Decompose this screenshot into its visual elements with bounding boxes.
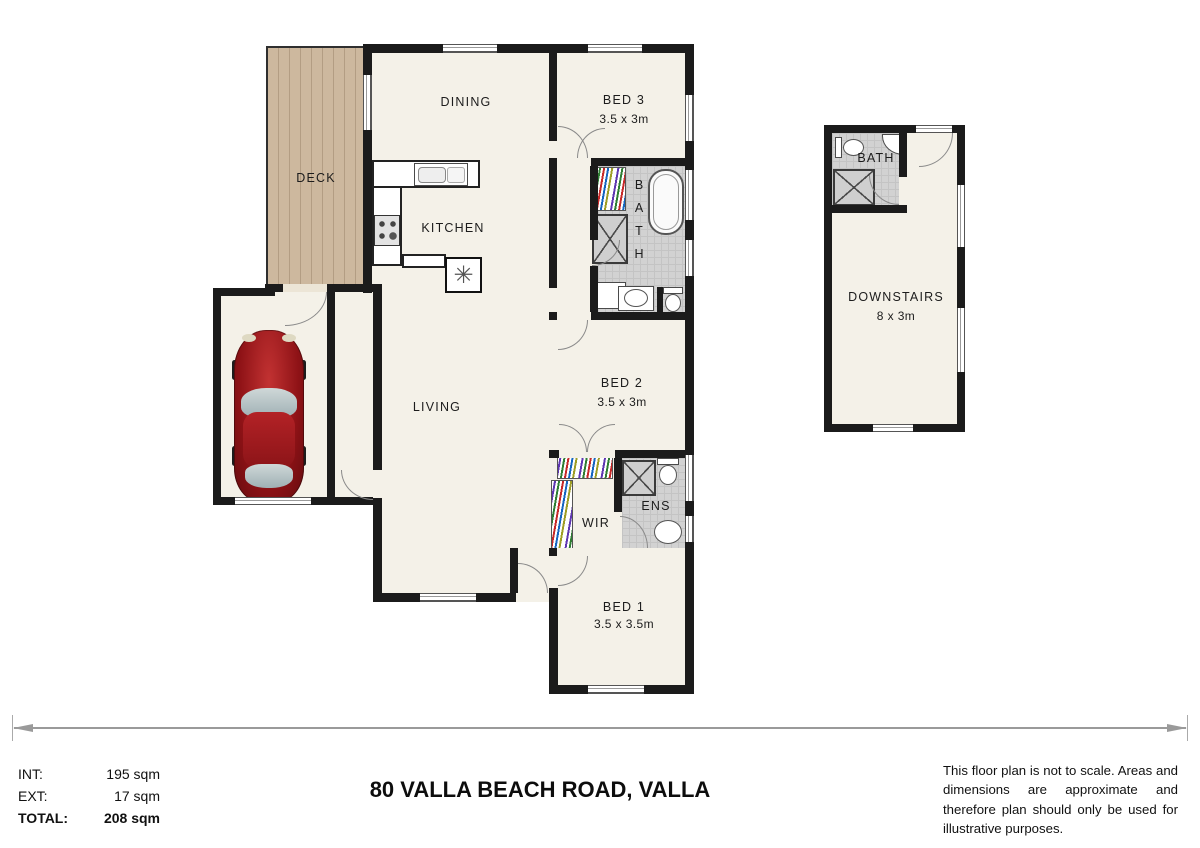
floor-plan-page: ✳ <box>0 0 1200 848</box>
area-int-label: INT: <box>18 763 98 785</box>
area-summary: INT:195 sqm EXT:17 sqm TOTAL:208 sqm <box>18 763 160 829</box>
wall <box>899 133 907 177</box>
wall <box>957 125 965 432</box>
area-total-label: TOTAL: <box>18 807 98 829</box>
wall <box>685 44 694 694</box>
window <box>916 125 952 133</box>
room-label-dining: DINING <box>441 95 492 109</box>
scale-end-tick <box>1187 715 1188 741</box>
window <box>443 44 497 53</box>
kitchen-bench-bottom <box>402 254 446 268</box>
area-ext-value: 17 sqm <box>98 785 160 807</box>
wall <box>614 450 622 512</box>
room-label-bed1: BED 1 <box>603 600 645 614</box>
ensuite-shower-icon <box>622 460 656 496</box>
door-opening <box>557 312 591 320</box>
window <box>588 44 642 53</box>
wall <box>549 44 557 141</box>
dishwasher-icon: ✳ <box>445 257 482 293</box>
bathtub-icon <box>648 169 684 235</box>
window <box>685 516 694 542</box>
door-opening <box>373 470 382 498</box>
window <box>685 170 694 220</box>
room-size-bed1: 3.5 x 3.5m <box>594 617 654 631</box>
wall <box>373 284 382 602</box>
wc-tank <box>663 287 683 294</box>
garage-door <box>235 497 311 505</box>
bath-basin-icon <box>624 289 648 307</box>
window <box>588 685 644 694</box>
room-label-bed2: BED 2 <box>601 376 643 390</box>
window <box>957 185 965 247</box>
wall <box>327 288 335 505</box>
ensuite-wc-tank <box>657 458 679 465</box>
window <box>420 593 476 602</box>
kitchen-sink-icon <box>414 163 468 186</box>
wall <box>213 288 275 296</box>
room-label-bed3: BED 3 <box>603 93 645 107</box>
door-opening <box>557 548 593 556</box>
sink-basin-right <box>447 167 465 183</box>
wall <box>363 44 694 53</box>
stove-icon <box>374 215 400 246</box>
wall <box>590 166 598 240</box>
wall <box>213 288 221 505</box>
car-headlight <box>282 334 296 342</box>
window <box>685 455 694 501</box>
wall <box>657 287 663 312</box>
window <box>363 75 372 130</box>
room-label-deck: DECK <box>296 171 336 185</box>
area-total-value: 208 sqm <box>98 807 160 829</box>
area-int-value: 195 sqm <box>98 763 160 785</box>
car-rear-window <box>245 464 293 488</box>
wir-hangers-left-icon <box>551 480 573 552</box>
room-label-kitchen: KITCHEN <box>421 221 484 235</box>
room-label-downstairs: DOWNSTAIRS <box>848 290 944 304</box>
door-opening <box>557 158 591 166</box>
room-label-bath: BATH <box>632 178 646 270</box>
room-label-downstairs-bath: BATH <box>857 151 894 165</box>
wall <box>824 125 832 432</box>
toilet-icon <box>665 294 681 312</box>
scale-line <box>14 727 1186 729</box>
window <box>685 95 694 141</box>
sink-basin-left <box>418 167 446 183</box>
car-roof <box>243 412 295 468</box>
room-size-bed2: 3.5 x 3m <box>597 395 646 409</box>
car-icon <box>234 330 304 502</box>
door-opening <box>516 593 549 602</box>
wall <box>335 497 381 505</box>
wall <box>549 158 557 288</box>
window <box>957 308 965 372</box>
room-size-downstairs: 8 x 3m <box>877 309 915 323</box>
deck-area <box>266 46 366 292</box>
window <box>685 240 694 276</box>
room-label-ens: ENS <box>641 499 670 513</box>
arrow-right-icon <box>1167 724 1187 732</box>
area-row-ext: EXT:17 sqm <box>18 785 160 807</box>
room-label-living: LIVING <box>413 400 461 414</box>
arrow-left-icon <box>13 724 33 732</box>
ensuite-toilet-icon <box>659 465 677 485</box>
door-opening <box>549 556 558 588</box>
disclaimer-text: This floor plan is not to scale. Areas a… <box>943 761 1178 839</box>
area-row-total: TOTAL:208 sqm <box>18 807 160 829</box>
car-headlight <box>242 334 256 342</box>
page-title: 80 VALLA BEACH ROAD, VALLA <box>370 777 711 803</box>
room-label-wir: WIR <box>582 516 610 530</box>
area-ext-label: EXT: <box>18 785 98 807</box>
room-size-bed3: 3.5 x 3m <box>599 112 648 126</box>
ensuite-basin-icon <box>654 520 682 544</box>
door-opening <box>283 284 327 292</box>
window <box>873 424 913 432</box>
downstairs-wc-tank <box>835 137 842 158</box>
dishwasher-symbol: ✳ <box>453 261 473 290</box>
wall <box>832 205 907 213</box>
area-row-int: INT:195 sqm <box>18 763 160 785</box>
